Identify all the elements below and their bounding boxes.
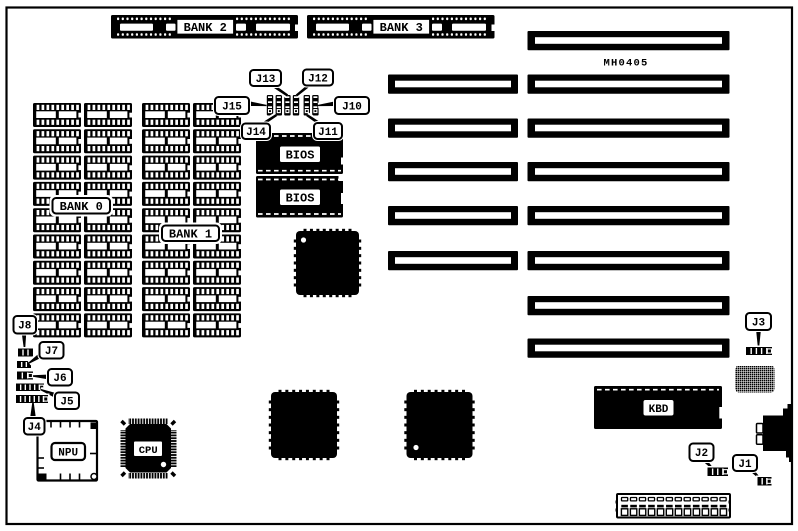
svg-text:J10: J10	[342, 101, 362, 113]
svg-text:J12: J12	[308, 73, 328, 85]
svg-text:MH0405: MH0405	[603, 58, 648, 70]
svg-text:J15: J15	[222, 101, 242, 113]
svg-text:J5: J5	[60, 397, 74, 409]
svg-text:J11: J11	[318, 127, 338, 139]
svg-text:J2: J2	[695, 448, 708, 460]
svg-text:BANK 2: BANK 2	[184, 21, 227, 35]
svg-text:J8: J8	[18, 321, 32, 333]
svg-text:J14: J14	[246, 127, 266, 139]
svg-text:J6: J6	[53, 373, 66, 385]
svg-text:BIOS: BIOS	[286, 191, 315, 205]
svg-text:KBD: KBD	[649, 404, 669, 416]
svg-text:J4: J4	[28, 422, 42, 434]
svg-text:J7: J7	[45, 346, 58, 358]
svg-text:BANK 3: BANK 3	[380, 21, 423, 35]
svg-text:J13: J13	[256, 74, 276, 86]
svg-text:J1: J1	[738, 459, 752, 471]
svg-text:CPU: CPU	[139, 445, 158, 457]
svg-text:J3: J3	[752, 317, 766, 329]
svg-text:BIOS: BIOS	[286, 148, 315, 162]
svg-text:NPU: NPU	[58, 448, 78, 460]
svg-text:BANK 1: BANK 1	[169, 228, 212, 242]
svg-text:BANK 0: BANK 0	[60, 200, 103, 214]
